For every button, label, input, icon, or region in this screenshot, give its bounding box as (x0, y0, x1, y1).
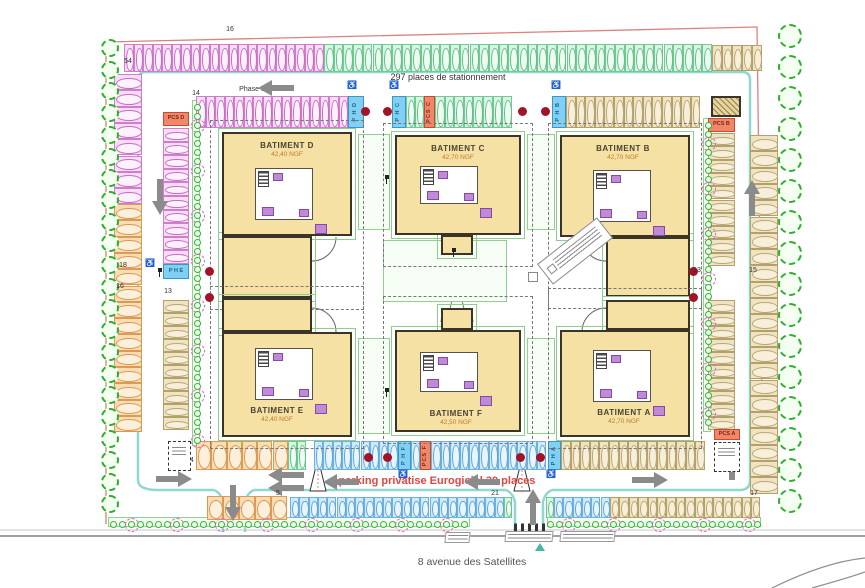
hedge-bush (194, 221, 201, 228)
stall-number-oval (754, 49, 762, 70)
flow-arrow (323, 474, 359, 490)
private-parking-label: parking privatise Eurogiciel 30 places (339, 475, 536, 487)
note-leader-box (528, 272, 538, 282)
site-plan: Phase 3 297 places de stationnement park… (0, 0, 865, 588)
light-post (158, 268, 162, 272)
stall-number-oval (385, 501, 392, 517)
parking-stall (441, 441, 451, 470)
parking-stall (238, 44, 248, 72)
flow-arrow-glyph (525, 489, 541, 525)
hedge-bush (628, 521, 635, 528)
hedge-bush (664, 521, 671, 528)
stall-number-oval (752, 334, 778, 345)
hedge-bush (155, 521, 162, 528)
service-room (299, 209, 309, 217)
parking-stall (402, 44, 412, 72)
parking-stall (163, 404, 189, 417)
stall-number-oval (116, 192, 142, 203)
parking-stall (267, 44, 277, 72)
parking-stall (601, 497, 610, 518)
flow-arrow-glyph (258, 80, 294, 96)
hedge-bush (682, 521, 689, 528)
parking-stall (499, 44, 509, 72)
hedge-bush (416, 521, 423, 528)
stall-number-oval (752, 285, 778, 296)
stall-number-oval (116, 110, 142, 121)
reserved-stall-pcsa: PCS A (714, 429, 740, 440)
parking-stall (693, 44, 703, 72)
tree (101, 213, 119, 231)
parking-stall (299, 497, 308, 518)
entrance-note (444, 532, 470, 543)
stall-number-oval (116, 354, 142, 365)
tree (101, 495, 119, 513)
stall-number-oval (452, 445, 460, 469)
parking-stall (498, 441, 508, 470)
flow-arrow (258, 80, 294, 96)
stall-number-oval (650, 501, 657, 517)
building-e-elevation: 42,40 NGF (261, 416, 293, 423)
stall-number-oval (116, 175, 142, 186)
building-c-name: BATIMENT C (431, 144, 485, 153)
parking-stall (411, 441, 420, 470)
parking-stall (457, 497, 466, 518)
hedge-bush (718, 521, 725, 528)
stall-number-oval (685, 48, 693, 71)
stall-number-oval (752, 253, 778, 264)
red-marker-dot (361, 107, 370, 116)
stall-number-oval (752, 139, 778, 150)
hedge-bush (110, 521, 117, 528)
service-room (464, 381, 474, 389)
stall-number-oval (116, 387, 142, 398)
stall-number-oval (497, 501, 504, 517)
parking-stall (286, 44, 296, 72)
parking-stall (708, 391, 735, 404)
parking-stall (200, 44, 210, 72)
flow-arrow (156, 471, 192, 487)
entrance-note-text (508, 534, 552, 541)
service-room (438, 357, 448, 365)
parking-stall (750, 282, 778, 298)
parking-stall (489, 44, 499, 72)
hedge-bush (637, 521, 644, 528)
parking-stall (374, 497, 383, 518)
tree (778, 365, 802, 389)
flow-arrow-glyph (268, 480, 304, 496)
stall-number-oval (145, 48, 153, 71)
stall-number-oval (433, 445, 441, 469)
building-a (606, 300, 690, 330)
red-marker-dot (205, 293, 214, 302)
flow-arrow-glyph (744, 180, 760, 216)
building-f-lobby (480, 396, 492, 406)
stall-code: P H C (396, 102, 402, 122)
parking-stall (210, 44, 220, 72)
hedge-bush (371, 521, 378, 528)
stall-number-oval (269, 48, 277, 71)
hedge-bush (727, 521, 734, 528)
stall-number-oval (231, 48, 239, 71)
service-room (299, 389, 309, 397)
parking-stall (750, 151, 778, 167)
stall-number-oval (710, 150, 735, 158)
tree (101, 430, 119, 448)
building-b-elevation: 42,70 NGF (607, 154, 639, 161)
stall-number-oval (752, 155, 778, 166)
parking-stall (467, 497, 476, 518)
parking-stall (554, 497, 563, 518)
stall-number-oval (394, 48, 402, 71)
building-e-lobby (315, 404, 327, 414)
stall-number-oval (752, 448, 778, 459)
parking-stall (750, 217, 778, 233)
parking-stall (373, 44, 383, 72)
flow-arrow (464, 474, 500, 490)
parking-stall (163, 155, 189, 169)
parking-stall (383, 497, 392, 518)
parking-stall (450, 441, 460, 470)
flow-arrow (744, 180, 760, 216)
service-room (600, 389, 612, 398)
stall-number-oval (539, 48, 547, 71)
stall-number-oval (165, 304, 189, 312)
hedge-bush (194, 239, 201, 246)
stall-number-oval (565, 501, 572, 517)
red-marker-dot (689, 293, 698, 302)
hedge-bush (290, 521, 297, 528)
stall-number-oval (491, 48, 499, 71)
building-d-core (255, 168, 313, 220)
stall-number-oval (710, 256, 735, 264)
stall-number-oval (710, 203, 735, 211)
stall-number-oval (241, 500, 255, 519)
flow-arrow-glyph (632, 472, 668, 488)
stall-number-oval (116, 224, 142, 235)
building-d-name: BATIMENT D (260, 141, 314, 150)
parking-stall (440, 44, 450, 72)
stall-number-oval (478, 501, 485, 517)
stall-number-oval (636, 48, 644, 71)
stall-number-oval (413, 501, 420, 517)
hedge-bush (191, 521, 198, 528)
stall-number-oval (752, 465, 778, 476)
flow-arrow (152, 179, 168, 215)
parking-stall (732, 497, 741, 518)
parking-stall (420, 497, 429, 518)
hedge-bush (705, 284, 712, 291)
stall-number-oval (376, 501, 383, 517)
hedge-bush (182, 521, 189, 528)
road-corner-curves (772, 558, 865, 588)
stall-number-oval (165, 330, 189, 338)
parking-stall (134, 44, 144, 72)
parking-stall (163, 300, 189, 313)
parking-stall (546, 497, 554, 518)
parking-stall (750, 331, 778, 347)
parking-stall (290, 497, 299, 518)
stall-number-oval (297, 48, 305, 71)
red-marker-dot (383, 107, 392, 116)
hedge-bush (194, 131, 201, 138)
stall-number-oval (714, 49, 722, 70)
building-b-name: BATIMENT B (596, 144, 650, 153)
red-marker-dot (383, 453, 392, 462)
hedge-bush (137, 521, 144, 528)
parking-stall (257, 44, 267, 72)
hedge-bush (194, 185, 201, 192)
parking-stall (673, 44, 683, 72)
parking-stall (654, 44, 664, 72)
parking-stall (586, 44, 596, 72)
hedge-bush (194, 311, 201, 318)
parking-stall (431, 44, 441, 72)
stall-number-oval (441, 501, 448, 517)
hedge-bush (194, 275, 201, 282)
hedge-bush (673, 521, 680, 528)
stall-number-oval (710, 216, 735, 224)
hedge-bush (194, 284, 201, 291)
parking-stall (605, 44, 615, 72)
parking-stall (337, 497, 346, 518)
parking-stall (708, 253, 735, 266)
parking-stall (207, 496, 223, 520)
stall-number-oval (375, 48, 383, 71)
shrub-ring (191, 434, 205, 448)
stall-number-oval (250, 48, 258, 71)
stall-number-oval (640, 501, 647, 517)
building-a-lobby (653, 406, 665, 416)
stall-number-oval (165, 408, 189, 416)
hedge-bush (194, 401, 201, 408)
wheelchair-icon: ♿ (546, 470, 556, 479)
red-marker-dot (536, 453, 545, 462)
entrance-note-text (448, 535, 469, 542)
parking-stall (431, 441, 441, 470)
hedge-bush (194, 365, 201, 372)
parking-stall (163, 142, 189, 156)
building-c-lobby (480, 208, 492, 218)
parking-stall (163, 378, 189, 391)
hedge-bush (705, 158, 712, 165)
stall-number-oval (752, 383, 778, 394)
stall-number-oval (631, 501, 638, 517)
reserved-stall-pcsf: PCS F (420, 441, 431, 470)
hedge-bush (326, 521, 333, 528)
stall-number-oval (165, 213, 189, 222)
light-post (385, 388, 389, 392)
wheelchair-icon: ♿ (347, 81, 357, 90)
stall-number-oval (116, 240, 142, 251)
refuse-room-text (718, 448, 735, 458)
parking-stall (324, 44, 334, 72)
parking-stall (582, 497, 591, 518)
zone-count-label: 14 (192, 90, 200, 97)
flow-arrow-glyph (225, 485, 241, 521)
tree (101, 365, 119, 383)
service-room (600, 209, 612, 218)
parking-stall (163, 352, 189, 365)
tree (778, 334, 802, 358)
stall-number-oval (569, 48, 577, 71)
parking-stall (485, 497, 494, 518)
hedge-bush (705, 302, 712, 309)
stall-number-oval (348, 501, 355, 517)
parking-stall (318, 497, 327, 518)
stall-number-oval (520, 48, 528, 71)
stall-number-oval (584, 501, 591, 517)
hedge-bush (236, 521, 243, 528)
stall-number-oval (715, 501, 722, 517)
pmr-stall-phe: P H E (163, 264, 189, 279)
stall-code: PCS F (423, 445, 429, 466)
stall-code: PCS C (427, 101, 433, 123)
hedge-bush (194, 356, 201, 363)
flow-arrow-glyph (156, 471, 192, 487)
building-a-name: BATIMENT A (597, 408, 650, 417)
hedge-bush (705, 338, 712, 345)
stall-number-oval (365, 48, 373, 71)
parking-stall (732, 45, 742, 71)
stall-number-oval (345, 48, 353, 71)
parking-stall (504, 497, 512, 518)
building-f-core (420, 352, 478, 392)
parking-stall (411, 44, 421, 72)
stall-number-oval (469, 501, 476, 517)
zone-count-label: 13 (693, 267, 701, 274)
stall-code: P H D (353, 102, 359, 122)
hedge-bush (705, 329, 712, 336)
parking-stall (695, 497, 704, 518)
stall-number-oval (744, 49, 752, 70)
stall-number-oval (666, 48, 674, 71)
zone-count-label: 5 (276, 490, 280, 497)
stall-number-oval (607, 48, 615, 71)
stall-number-oval (491, 445, 499, 469)
stall-number-oval (404, 48, 412, 71)
zone-count-label: 16 (226, 26, 234, 33)
service-room (427, 191, 439, 200)
building-f-elevation: 42,50 NGF (440, 419, 472, 426)
tree (778, 55, 802, 79)
stall-number-oval (413, 445, 420, 469)
stall-number-oval (116, 322, 142, 333)
zone-count-label: 18 (119, 262, 127, 269)
stair-core (596, 173, 607, 189)
parking-stall (619, 497, 628, 518)
parking-stall (708, 300, 735, 313)
red-marker-dot (516, 453, 525, 462)
red-marker-dot (364, 453, 373, 462)
parking-stall (750, 135, 778, 151)
tree (101, 256, 119, 274)
pmr-stall-phf: P H F (398, 441, 411, 470)
stall-number-oval (116, 371, 142, 382)
parking-stall (750, 380, 778, 396)
parking-stall (402, 497, 411, 518)
building-d-lobby (315, 224, 327, 234)
hedge-bush (146, 521, 153, 528)
stall-number-oval (165, 343, 189, 351)
service-room (427, 379, 439, 388)
stall-number-oval (116, 208, 142, 219)
hedge-bush (705, 248, 712, 255)
entrance-note-text (563, 534, 614, 541)
tree (101, 191, 119, 209)
stall-number-oval (452, 48, 460, 71)
hedge-bush (245, 521, 252, 528)
parking-stall (163, 391, 189, 404)
stall-number-oval (165, 240, 189, 249)
building-d-elevation: 42,40 NGF (271, 151, 303, 158)
parking-stall (708, 213, 735, 226)
stall-number-oval (588, 48, 596, 71)
parking-stall (239, 496, 255, 520)
light-post (452, 248, 456, 252)
stall-number-oval (336, 48, 344, 71)
zone-count-label: 15 (749, 267, 757, 274)
stall-number-oval (530, 48, 538, 71)
hedge-bush (754, 521, 761, 528)
tree (778, 117, 802, 141)
stall-number-oval (136, 48, 144, 71)
parking-stall (576, 44, 586, 72)
stall-code: P H B (556, 102, 562, 122)
parking-stall (518, 44, 528, 72)
stall-number-oval (598, 48, 606, 71)
stall-number-oval (487, 501, 494, 517)
parking-stall (596, 44, 606, 72)
stall-number-oval (240, 48, 248, 71)
parking-stall (508, 44, 518, 72)
stall-number-oval (443, 445, 451, 469)
stall-number-oval (155, 48, 163, 71)
stall-number-oval (603, 501, 610, 517)
stall-number-oval (357, 501, 364, 517)
parking-stall (191, 44, 201, 72)
stall-number-oval (413, 48, 421, 71)
parking-stall (625, 44, 635, 72)
stall-number-oval (752, 220, 778, 231)
red-marker-dot (541, 107, 550, 116)
parking-stall (750, 298, 778, 314)
tree (778, 489, 802, 513)
parking-stall (334, 44, 344, 72)
building-b-lobby (653, 226, 665, 236)
parking-stall (448, 497, 457, 518)
parking-stall (163, 313, 189, 326)
parking-stall (479, 441, 489, 470)
stall-number-oval (202, 48, 210, 71)
hedge-bush (705, 347, 712, 354)
stall-number-oval (710, 395, 735, 403)
tree (778, 86, 802, 110)
parking-stall (479, 44, 489, 72)
tree (101, 104, 119, 122)
stall-number-oval (578, 48, 586, 71)
hedge-bush (281, 521, 288, 528)
wheelchair-icon: ♿ (398, 470, 408, 479)
parking-stall (411, 497, 420, 518)
hedge-bush (194, 419, 201, 426)
hedge-bush (452, 521, 459, 528)
stall-number-oval (165, 132, 189, 141)
parking-stall (364, 497, 373, 518)
stall-number-oval (510, 48, 518, 71)
stall-number-oval (288, 48, 296, 71)
stall-number-oval (481, 445, 489, 469)
flow-arrow (632, 472, 668, 488)
